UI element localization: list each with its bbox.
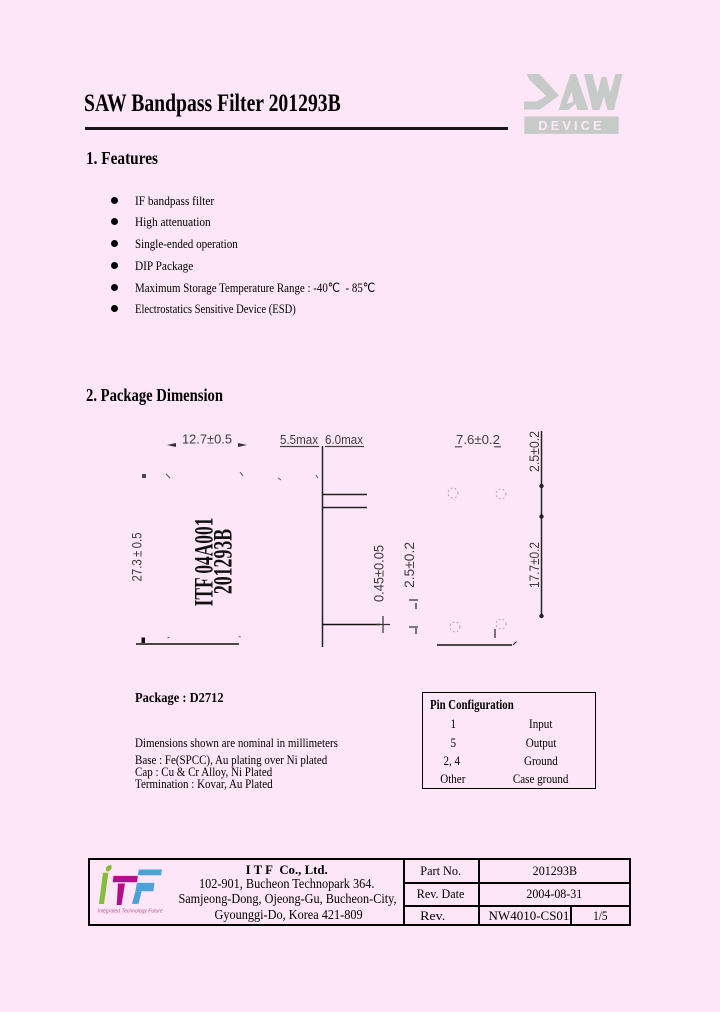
svg-text:DEVICE: DEVICE: [538, 118, 604, 133]
svg-text:17.7±0.2: 17.7±0.2: [526, 542, 542, 588]
svg-text:5.5max: 5.5max: [280, 432, 318, 447]
svg-text:2.5±0.2: 2.5±0.2: [401, 542, 417, 588]
svg-text:201293B: 201293B: [208, 529, 237, 594]
svg-text:6.0max: 6.0max: [325, 432, 363, 447]
svg-text:0.45±0.05: 0.45±0.05: [371, 545, 387, 602]
svg-text:27.3 ± 0.5: 27.3 ± 0.5: [129, 532, 145, 581]
svg-text:2.5±0.2: 2.5±0.2: [526, 431, 542, 472]
svg-text:Integrated Technology Future: Integrated Technology Future: [98, 909, 163, 915]
svg-text:7.6±0.2: 7.6±0.2: [456, 432, 500, 447]
svg-text:12.7±0.5: 12.7±0.5: [182, 432, 232, 447]
